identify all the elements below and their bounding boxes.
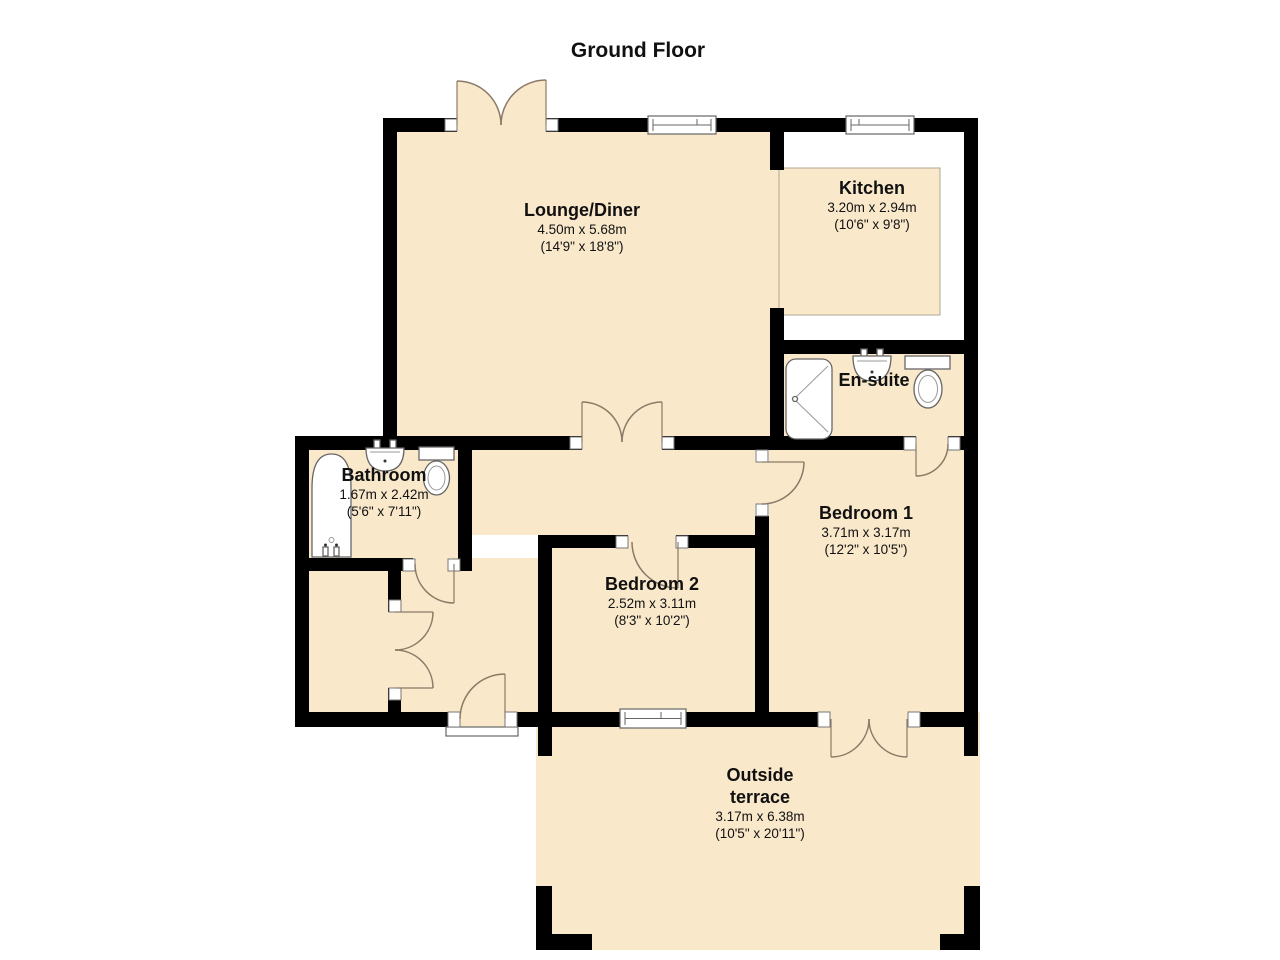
wall-mid-band-right bbox=[662, 436, 916, 450]
entrance-threshold bbox=[446, 727, 518, 736]
floorplan-drawing: Ground Floor Lounge/Diner 4.50m x 5.68m … bbox=[0, 0, 1280, 960]
entrance-door-gap bbox=[460, 712, 505, 727]
wall-lounge-left bbox=[383, 118, 397, 448]
door-jamb bbox=[616, 536, 628, 548]
wall-kitchen-bottom bbox=[770, 340, 978, 354]
wall-terrace-corner-left-h bbox=[536, 934, 592, 950]
page-title: Ground Floor bbox=[571, 39, 705, 62]
door-jamb bbox=[756, 450, 768, 462]
wall-bottom-left bbox=[295, 712, 457, 727]
room-label-terrace-name-line2: terrace bbox=[730, 787, 790, 807]
room-label-kitchen-imperial: (10'6" x 9'8") bbox=[834, 217, 910, 232]
window bbox=[648, 116, 716, 134]
bathroom-door-gap bbox=[415, 558, 448, 571]
bedroom1-door-gap bbox=[755, 462, 769, 504]
entrance-hall-floor bbox=[309, 558, 551, 715]
room-label-bathroom-metric: 1.67m x 2.42m bbox=[339, 487, 428, 502]
room-label-kitchen-metric: 3.20m x 2.94m bbox=[827, 200, 916, 215]
room-label-kitchen-name: Kitchen bbox=[839, 178, 905, 198]
room-label-bedroom2-metric: 2.52m x 3.11m bbox=[608, 596, 696, 611]
window bbox=[846, 116, 914, 134]
lounge-floor bbox=[397, 132, 770, 436]
door-jamb bbox=[948, 437, 960, 450]
door-jamb bbox=[505, 712, 517, 727]
shower-icon bbox=[786, 359, 832, 439]
wall-kitchen-divider-upper bbox=[770, 132, 784, 170]
door-jamb bbox=[403, 559, 415, 571]
hall-floor bbox=[458, 448, 755, 535]
door-jamb bbox=[908, 712, 920, 727]
wall-bedroom-divider bbox=[755, 516, 769, 712]
door-jamb bbox=[662, 437, 674, 449]
window bbox=[620, 709, 686, 728]
room-label-bedroom1-metric: 3.71m x 3.17m bbox=[821, 525, 910, 540]
door-jamb bbox=[389, 688, 401, 700]
room-label-bedroom1-name: Bedroom 1 bbox=[819, 503, 913, 523]
room-label-lounge-name: Lounge/Diner bbox=[524, 200, 640, 220]
door-jamb bbox=[448, 712, 460, 727]
room-label-ensuite-name: En-suite bbox=[838, 370, 909, 390]
room-label-terrace-metric: 3.17m x 6.38m bbox=[715, 809, 804, 824]
door-jamb bbox=[904, 437, 916, 450]
room-label-bathroom-imperial: (5'6" x 7'11") bbox=[347, 504, 422, 519]
room-label-terrace-imperial: (10'5" x 20'11") bbox=[715, 826, 805, 841]
floorplan-page: Ground Floor Lounge/Diner 4.50m x 5.68m … bbox=[0, 0, 1280, 960]
door-jamb bbox=[546, 119, 558, 131]
door-jamb bbox=[818, 712, 830, 727]
bedroom1-floor bbox=[769, 450, 964, 715]
room-label-bedroom2-name: Bedroom 2 bbox=[605, 574, 699, 594]
room-label-bedroom1-imperial: (12'2" x 10'5") bbox=[824, 542, 907, 557]
door-jamb bbox=[570, 437, 582, 449]
wall-ensuite-left bbox=[770, 354, 784, 450]
wall-left-exterior bbox=[295, 436, 309, 727]
wall-terrace-corner-right-h bbox=[940, 934, 980, 950]
door-jamb bbox=[389, 600, 401, 612]
bedroom2-door-gap bbox=[628, 535, 676, 548]
door-jamb bbox=[756, 504, 768, 516]
room-label-bathroom-name: Bathroom bbox=[342, 465, 427, 485]
ensuite-door-gap bbox=[916, 437, 948, 450]
room-label-bedroom2-imperial: (8'3" x 10'2") bbox=[614, 613, 690, 628]
room-label-lounge-imperial: (14'9" x 18'8") bbox=[540, 239, 623, 254]
door-jamb bbox=[445, 119, 457, 131]
room-label-terrace-name-line1: Outside bbox=[726, 765, 793, 785]
room-label-lounge-metric: 4.50m x 5.68m bbox=[537, 222, 626, 237]
wall-bathroom-right bbox=[458, 448, 472, 571]
